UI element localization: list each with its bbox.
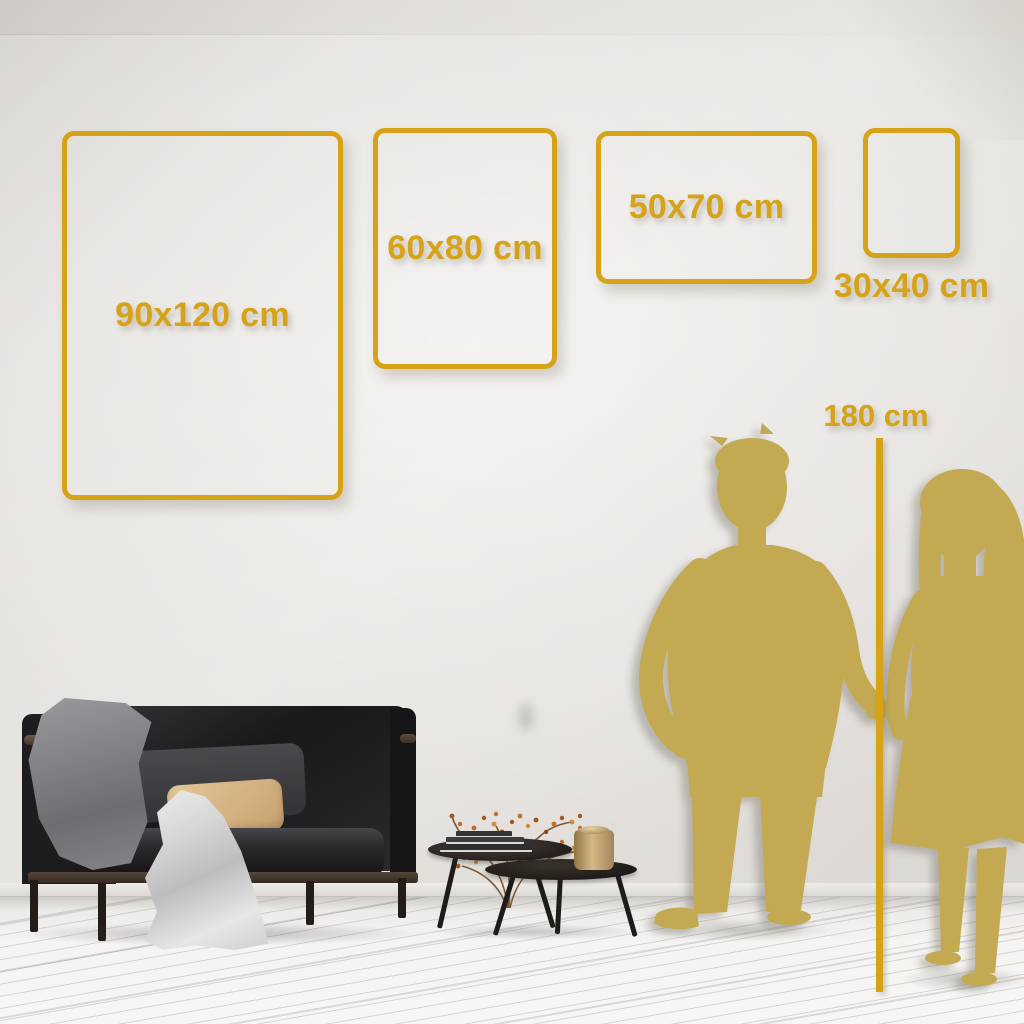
frame-size-label: 90x120 cm [115,296,290,335]
book [440,844,532,852]
frame-60x80: 60x80 cm [373,128,557,369]
poster-size-guide-scene: 90x120 cm 60x80 cm 50x70 cm 30x40 cm [0,0,1024,1024]
man-silhouette [651,423,889,929]
corner-shade [804,0,1024,140]
sofa [18,692,420,948]
woman-silhouette [891,469,1024,986]
frame-90x120: 90x120 cm [62,131,343,500]
frame-30x40: 30x40 cm [863,128,960,258]
frame-size-label: 50x70 cm [629,188,785,227]
couple-silhouette-icon [600,420,1024,1024]
book [446,837,524,844]
book [456,831,512,837]
sofa-leg [398,878,406,918]
sofa-leg [306,881,314,925]
sofa-leg [30,880,38,932]
height-ruler-line [876,438,883,992]
height-reference-label: 180 cm [796,398,956,434]
wall-smudge [519,703,533,731]
frame-size-label: 60x80 cm [387,229,543,268]
frame-size-label: 30x40 cm [834,267,990,306]
frame-50x70: 50x70 cm [596,131,817,284]
sofa-wood-armrest-right [400,734,416,743]
